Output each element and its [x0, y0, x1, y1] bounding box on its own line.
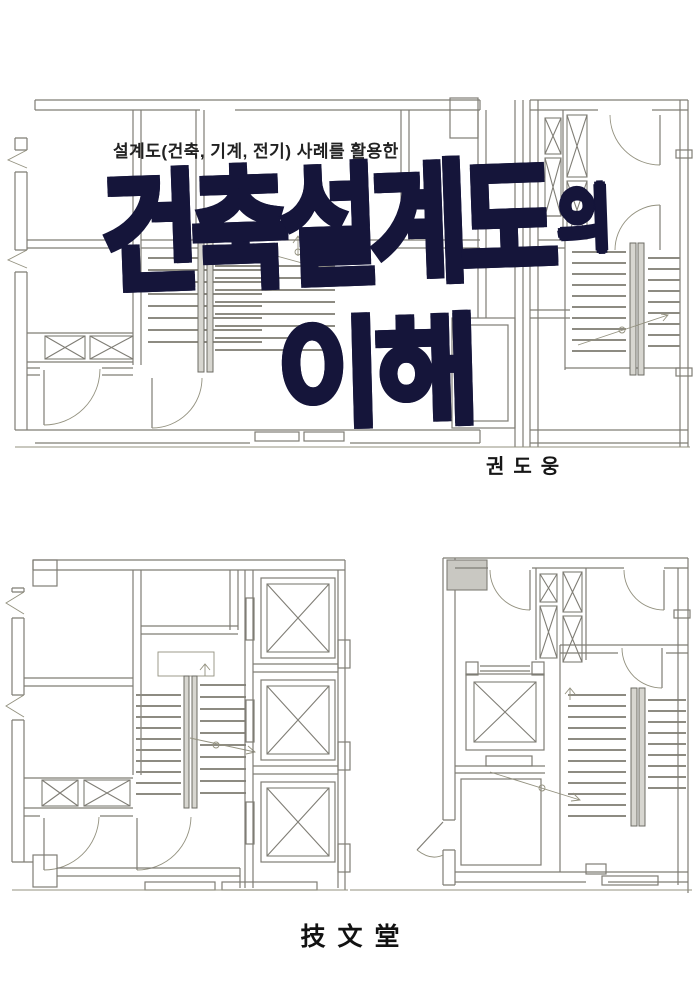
floor-plan-bottom-right [350, 558, 692, 893]
title-main-text: 건축설계도 [100, 149, 552, 308]
author-name: 권도웅 [486, 450, 568, 479]
title-particle-text: 의 [556, 180, 612, 261]
publisher-name: 技文堂 [0, 917, 700, 953]
title-line1: 건축설계도의 [100, 154, 613, 301]
book-cover: 설계도(건축, 기계, 전기) 사례를 활용한 건축설계도의 이해 권도웅 技文… [0, 0, 700, 994]
floor-plan-bottom-left [6, 560, 350, 890]
title-line2: 이해 [276, 313, 475, 436]
